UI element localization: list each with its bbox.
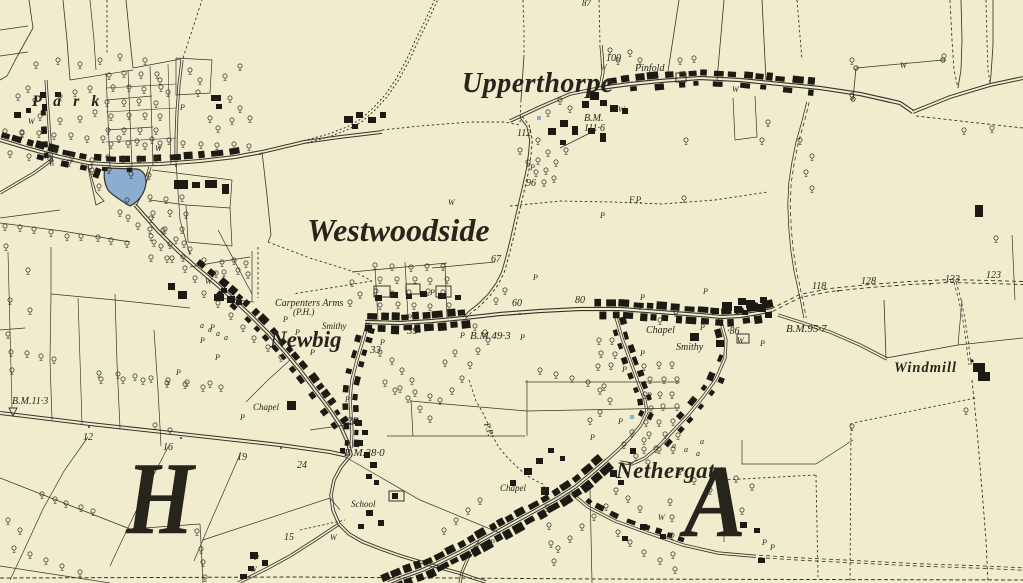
svg-text:87: 87 (582, 0, 592, 8)
svg-text:P: P (761, 538, 767, 547)
svg-text:H: H (125, 441, 196, 556)
svg-text:(P.H.): (P.H.) (293, 307, 314, 317)
svg-text:P: P (429, 288, 435, 297)
svg-text:B.M.11·3: B.M.11·3 (12, 396, 48, 407)
svg-text:118: 118 (812, 281, 826, 292)
svg-text:Chapel: Chapel (646, 325, 675, 336)
svg-text:P: P (699, 323, 705, 332)
svg-text:Pinfold: Pinfold (634, 63, 665, 74)
svg-text:P: P (599, 211, 605, 220)
svg-text:P: P (379, 338, 385, 347)
svg-text:39: 39 (406, 325, 419, 337)
svg-text:123: 123 (986, 270, 1001, 281)
svg-text:P: P (769, 543, 775, 552)
svg-text:P a r k: P a r k (31, 93, 103, 110)
svg-text:111·6: 111·6 (584, 123, 605, 134)
svg-text:a: a (672, 441, 676, 450)
svg-text:P: P (532, 273, 538, 282)
svg-text:P: P (175, 368, 181, 377)
svg-text:P: P (617, 417, 623, 426)
svg-text:P: P (459, 331, 465, 340)
svg-text:P: P (639, 349, 645, 358)
svg-text:a: a (684, 445, 688, 454)
svg-text:P: P (282, 315, 288, 324)
svg-text:28: 28 (347, 415, 359, 427)
svg-text:128: 128 (861, 276, 876, 287)
svg-text:P: P (321, 391, 327, 400)
svg-text:15: 15 (284, 532, 294, 543)
svg-text:P: P (702, 287, 708, 296)
svg-text:a: a (200, 321, 204, 330)
svg-text:a: a (208, 325, 212, 334)
svg-text:Smithy: Smithy (322, 321, 347, 331)
svg-text:19: 19 (237, 452, 247, 463)
svg-text:16: 16 (163, 442, 173, 453)
svg-text:Upperthorpe: Upperthorpe (462, 68, 614, 99)
svg-text:F.P.: F.P. (628, 195, 642, 205)
svg-text:P: P (239, 413, 245, 422)
svg-text:P: P (253, 553, 259, 562)
svg-text:12: 12 (83, 432, 93, 443)
svg-text:a: a (224, 333, 228, 342)
svg-text:P: P (406, 313, 412, 322)
svg-text:112: 112 (517, 128, 531, 139)
svg-text:P: P (589, 433, 595, 442)
svg-text:a: a (700, 437, 704, 446)
svg-text:School: School (351, 499, 376, 509)
svg-text:P: P (236, 298, 242, 307)
svg-text:a: a (216, 329, 220, 338)
svg-text:Westwoodside: Westwoodside (307, 212, 490, 248)
svg-text:P: P (309, 348, 315, 357)
svg-text:Chapel: Chapel (500, 483, 526, 493)
svg-text:24: 24 (297, 460, 307, 471)
svg-text:P: P (489, 538, 495, 547)
svg-text:Windmill: Windmill (894, 360, 957, 376)
svg-text:60: 60 (512, 298, 522, 309)
svg-text:P: P (355, 439, 361, 448)
svg-text:P: P (214, 353, 220, 362)
svg-text:P: P (294, 328, 300, 337)
svg-text:a: a (696, 449, 700, 458)
svg-text:P: P (199, 336, 205, 345)
svg-text:P: P (519, 333, 525, 342)
svg-text:P: P (646, 391, 652, 400)
svg-text:P: P (621, 365, 627, 374)
svg-text:133: 133 (945, 274, 960, 285)
svg-text:B.M.28·0: B.M.28·0 (344, 447, 385, 459)
svg-text:96: 96 (526, 178, 536, 189)
svg-text:80: 80 (575, 295, 585, 306)
svg-text:P: P (179, 103, 185, 112)
svg-text:P: P (344, 395, 350, 404)
svg-text:100: 100 (606, 53, 621, 64)
svg-text:A: A (679, 444, 746, 559)
svg-text:67: 67 (491, 254, 502, 265)
svg-text:P: P (639, 293, 645, 302)
svg-text:B.M.49·3: B.M.49·3 (470, 330, 511, 342)
svg-text:P: P (759, 339, 765, 348)
svg-text:B.M.95·7: B.M.95·7 (786, 323, 827, 335)
svg-text:Smithy: Smithy (676, 342, 704, 353)
svg-text:P: P (529, 163, 535, 172)
svg-text:Chapel: Chapel (253, 402, 279, 412)
